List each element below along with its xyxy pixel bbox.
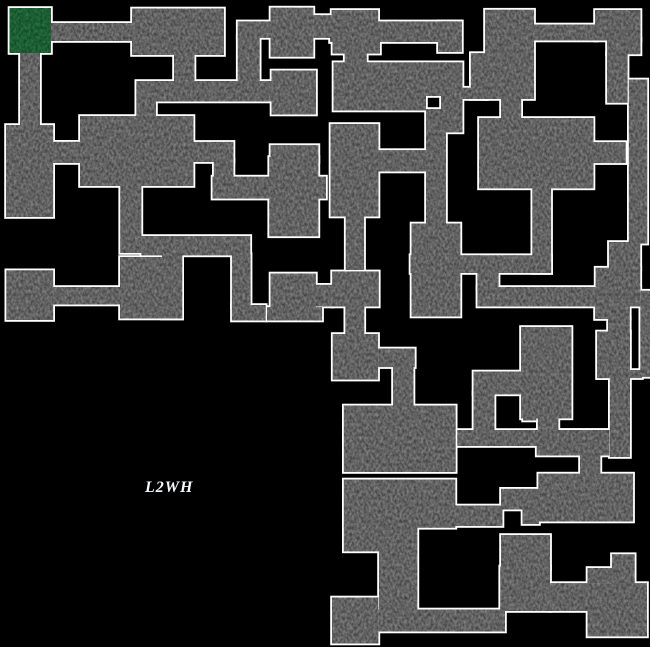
svg-text:L2WH: L2WH (144, 479, 193, 496)
